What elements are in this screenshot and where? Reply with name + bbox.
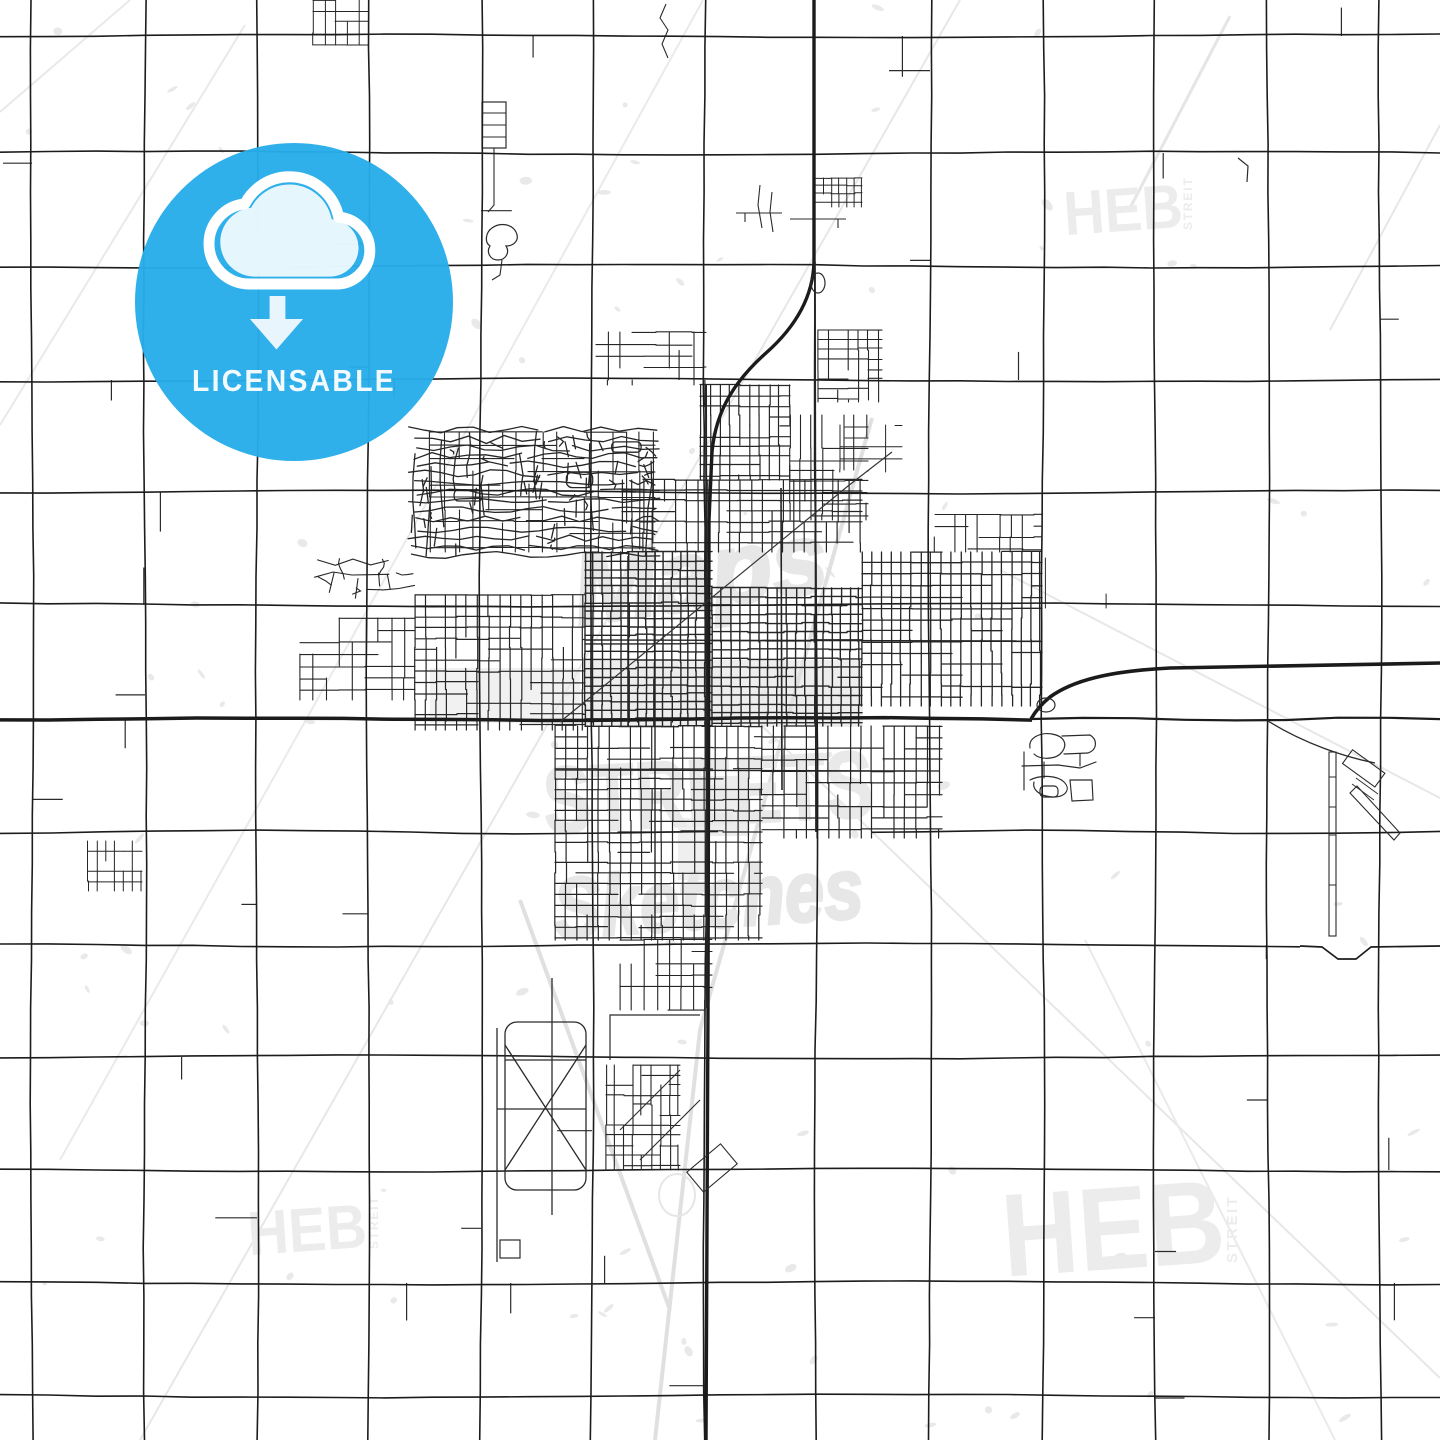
- svg-text:HEB: HEB: [997, 1155, 1229, 1302]
- svg-text:HEB: HEB: [1061, 172, 1185, 249]
- svg-text:STREIT: STREIT: [1224, 1195, 1241, 1263]
- svg-text:LICENSABLE: LICENSABLE: [192, 363, 396, 398]
- svg-text:HEB: HEB: [245, 1192, 369, 1269]
- svg-text:STREIT: STREIT: [1181, 177, 1195, 230]
